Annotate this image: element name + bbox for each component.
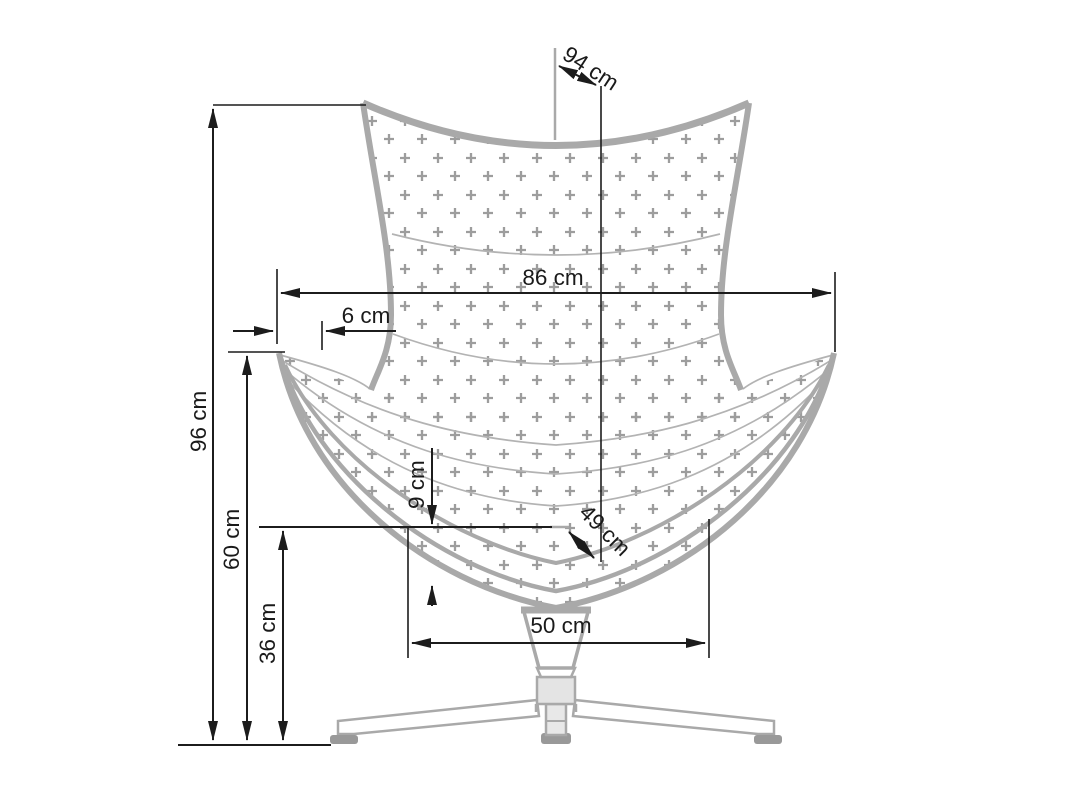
dim-label-seat-height: 36 cm (255, 603, 280, 664)
pedestal-cylinder (537, 677, 575, 704)
dim-label-total-height: 96 cm (186, 391, 211, 452)
dim-label-back-width: 86 cm (522, 265, 583, 290)
base-leg-right (573, 700, 774, 734)
dim-label-base-width: 50 cm (530, 613, 591, 638)
dim-label-total-depth: 94 cm (558, 41, 623, 95)
foot-pad-left (330, 735, 358, 744)
chair-dimension-drawing: 96 cm 60 cm 36 cm 86 cm 6 cm (0, 0, 1068, 801)
pedestal-column (546, 704, 566, 735)
dim-label-armrest-offset: 6 cm (342, 303, 391, 328)
chair (279, 48, 834, 608)
base-leg-left (338, 700, 539, 734)
drawing-canvas: 96 cm 60 cm 36 cm 86 cm 6 cm (0, 0, 1068, 801)
foot-pad-right (754, 735, 782, 744)
dim-label-cushion-thickness: 9 cm (404, 460, 429, 509)
dim-armrest-height: 60 cm (219, 352, 285, 740)
dim-label-armrest-height: 60 cm (219, 509, 244, 570)
dim-armrest-offset: 6 cm (233, 303, 396, 350)
